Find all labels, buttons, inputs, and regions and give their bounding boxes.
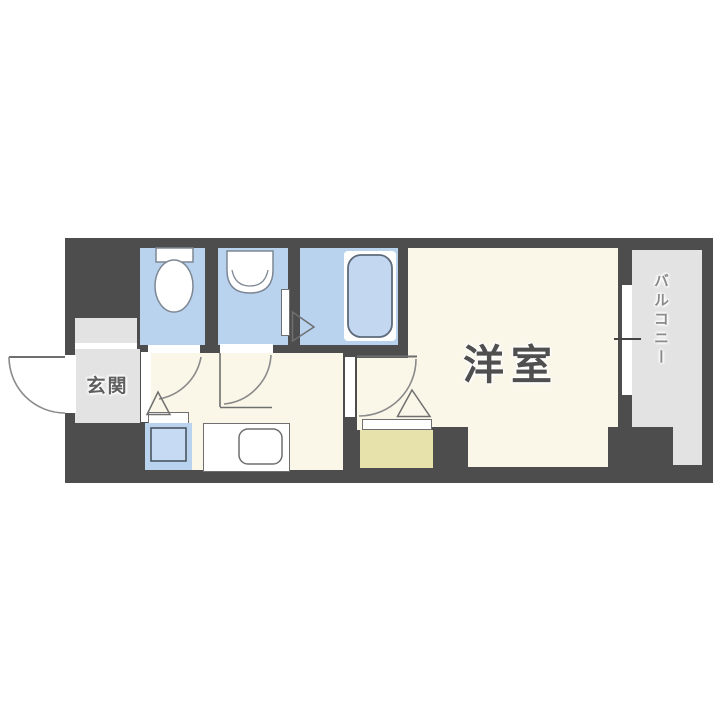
entrance-label: 玄関 bbox=[75, 371, 140, 398]
floor-plan: 玄関 洋室 バルコニー bbox=[0, 0, 720, 720]
washbasin-door-gap bbox=[220, 344, 273, 353]
balcony-window-gap bbox=[622, 285, 632, 395]
western-door-gap bbox=[345, 357, 355, 417]
shoe-cabinet bbox=[75, 318, 137, 343]
washer-pan-area bbox=[145, 423, 192, 470]
door-swing-icon-entrance bbox=[9, 357, 65, 413]
room-bathroom bbox=[300, 248, 398, 345]
closet bbox=[360, 430, 433, 468]
balcony-foot bbox=[673, 427, 702, 465]
western-room-label: 洋室 bbox=[436, 331, 586, 391]
kitchen-counter bbox=[203, 423, 290, 472]
closet-door-bar bbox=[362, 419, 432, 430]
bathroom-door-leaf bbox=[281, 289, 290, 336]
balcony-label: バルコニー bbox=[650, 273, 671, 413]
room-western-south bbox=[468, 427, 608, 467]
room-toilet bbox=[140, 248, 205, 345]
toilet-door-gap bbox=[148, 345, 200, 353]
room-washbasin bbox=[218, 248, 288, 345]
